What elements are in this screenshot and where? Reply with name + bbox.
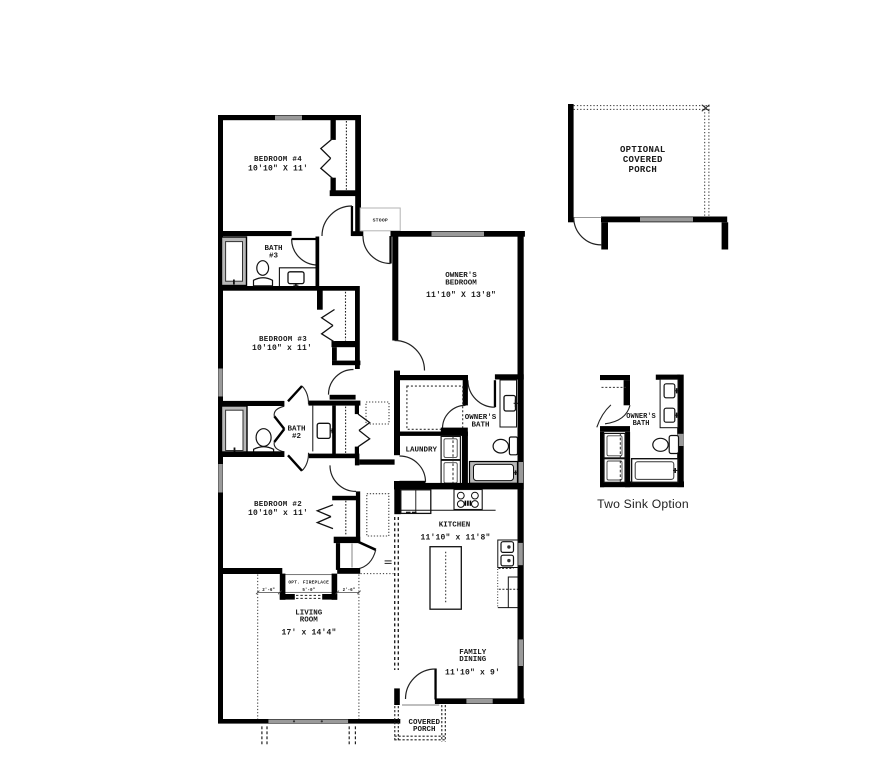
svg-text:BEDROOM #2: BEDROOM #2 <box>254 501 302 509</box>
svg-text:10'10" X 11': 10'10" X 11' <box>248 165 308 174</box>
svg-text:PORCH: PORCH <box>413 726 436 734</box>
svg-text:2'-6": 2'-6" <box>343 588 356 593</box>
svg-text:LAUNDRY: LAUNDRY <box>406 447 438 455</box>
svg-text:DINING: DINING <box>459 656 487 664</box>
svg-text:OPTIONAL: OPTIONAL <box>620 145 666 155</box>
svg-text:KITCHEN: KITCHEN <box>439 522 471 530</box>
svg-text:COVERED: COVERED <box>623 155 663 165</box>
svg-text:#2: #2 <box>292 433 302 441</box>
svg-text:BEDROOM #4: BEDROOM #4 <box>254 156 302 164</box>
svg-text:OPT. FIREPLACE: OPT. FIREPLACE <box>288 579 329 585</box>
svg-text:BEDROOM #3: BEDROOM #3 <box>259 336 307 344</box>
svg-text:ROOM: ROOM <box>300 617 319 625</box>
svg-text:10'10" x 11': 10'10" x 11' <box>248 509 308 518</box>
svg-text:10'10" x 11': 10'10" x 11' <box>252 344 312 353</box>
svg-text:11'10" x 9': 11'10" x 9' <box>445 668 500 677</box>
svg-text:2'-6": 2'-6" <box>262 588 275 593</box>
svg-text:BATH: BATH <box>633 420 650 428</box>
svg-text:11'10" x 11'8": 11'10" x 11'8" <box>420 533 490 542</box>
svg-text:BATH: BATH <box>471 421 489 429</box>
svg-text:PORCH: PORCH <box>629 165 658 175</box>
svg-text:Two Sink Option: Two Sink Option <box>597 497 689 511</box>
svg-text:BEDROOM: BEDROOM <box>445 280 477 288</box>
svg-text:11'10" X 13'8": 11'10" X 13'8" <box>426 291 496 300</box>
svg-text:17' x 14'4": 17' x 14'4" <box>281 629 336 638</box>
svg-text:#3: #3 <box>269 253 279 261</box>
svg-text:5'-0": 5'-0" <box>302 588 315 593</box>
svg-text:STOOP: STOOP <box>373 218 388 224</box>
